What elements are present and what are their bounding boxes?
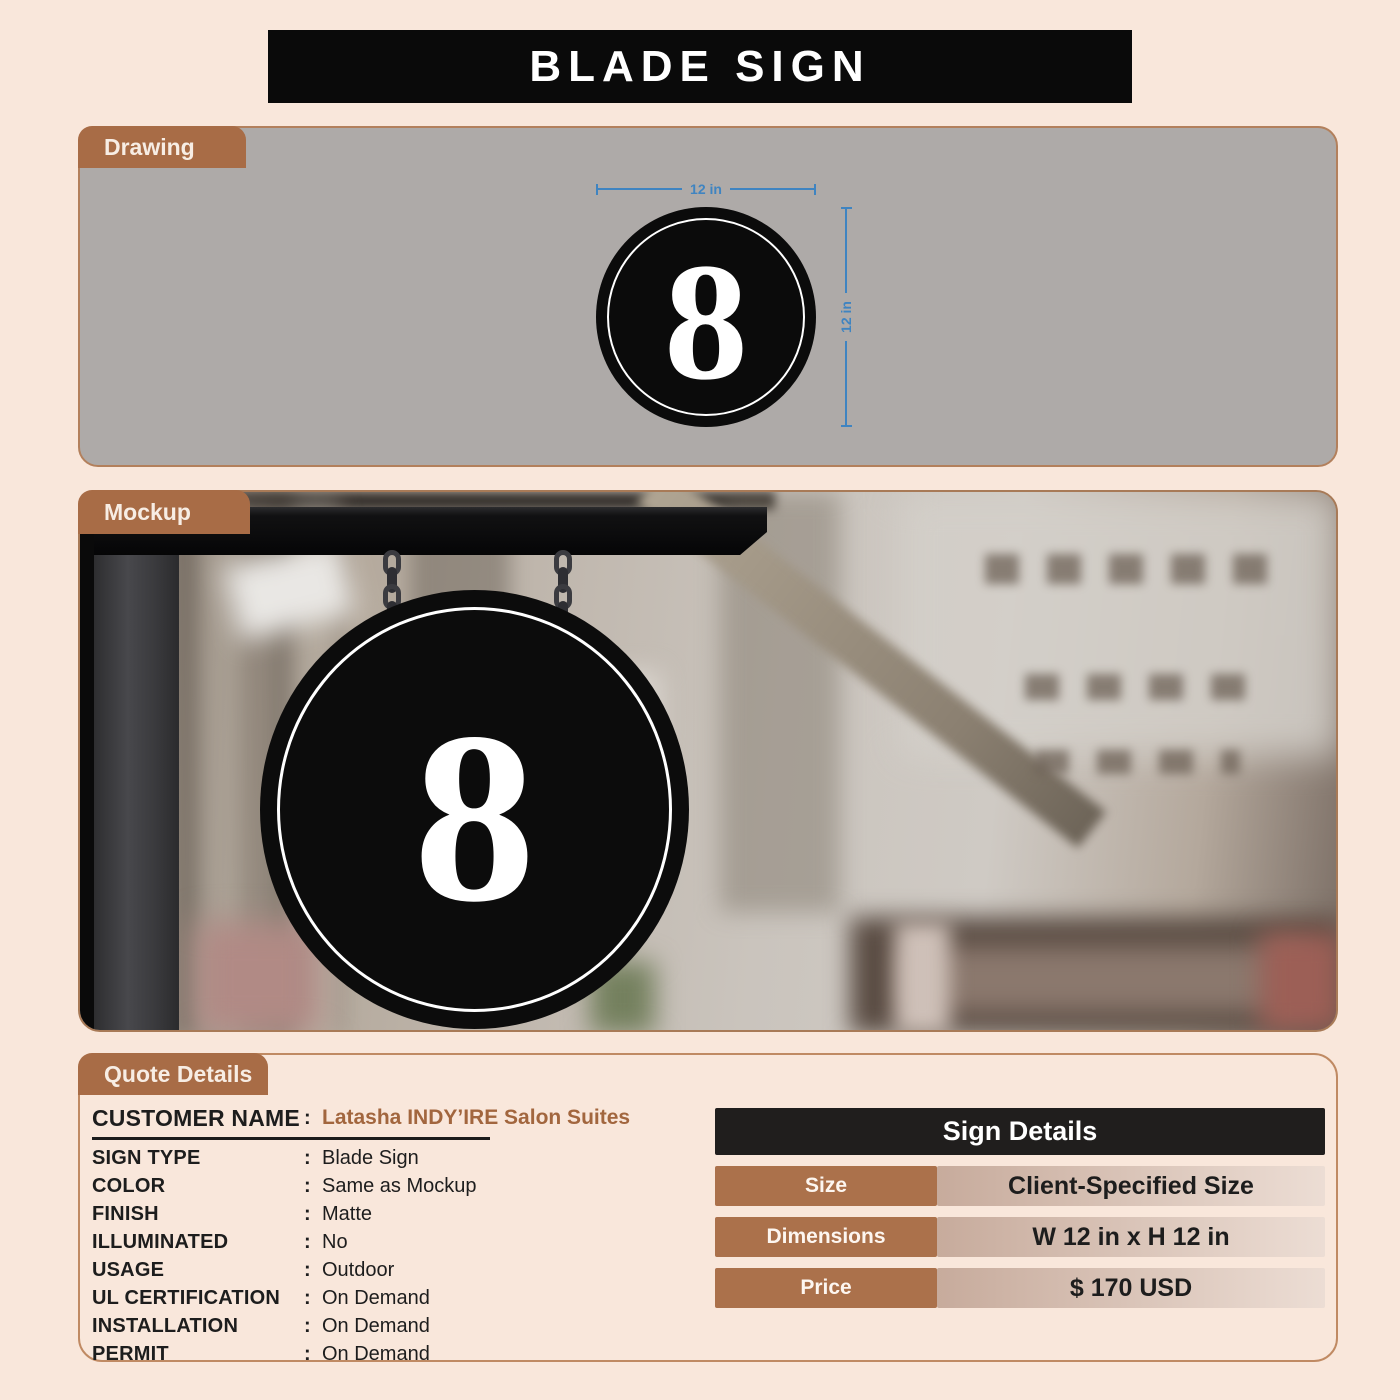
quote-fields: CUSTOMER NAME : Latasha INDY’IRE Salon S… bbox=[92, 1101, 692, 1368]
mockup-panel: 8 bbox=[78, 490, 1338, 1032]
field-colon: : bbox=[304, 1259, 322, 1282]
quote-details-tab-label: Quote Details bbox=[104, 1061, 252, 1088]
quote-field-ul-certification: UL CERTIFICATION : On Demand bbox=[92, 1284, 692, 1312]
dimension-tick bbox=[814, 184, 816, 195]
photo-signage-row bbox=[1035, 750, 1240, 774]
dimension-line bbox=[730, 188, 814, 190]
field-label: ILLUMINATED bbox=[92, 1231, 304, 1254]
quote-field-sign-type: SIGN TYPE : Blade Sign bbox=[92, 1144, 692, 1172]
width-dimension-label: 12 in bbox=[690, 181, 722, 197]
row-value: Client-Specified Size bbox=[1008, 1172, 1254, 1201]
field-label: UL CERTIFICATION bbox=[92, 1287, 304, 1310]
field-value: On Demand bbox=[322, 1315, 430, 1338]
field-colon: : bbox=[304, 1175, 322, 1198]
mockup-sign-number: 8 bbox=[414, 695, 536, 939]
row-value-cell: $ 170 USD bbox=[937, 1268, 1325, 1308]
field-label: CUSTOMER NAME bbox=[92, 1105, 304, 1132]
mockup-tab-label: Mockup bbox=[104, 499, 191, 526]
field-label: INSTALLATION bbox=[92, 1315, 304, 1338]
mockup-tab: Mockup bbox=[78, 490, 250, 534]
field-colon: : bbox=[304, 1343, 322, 1366]
quote-field-illuminated: ILLUMINATED : No bbox=[92, 1228, 692, 1256]
field-colon: : bbox=[304, 1315, 322, 1338]
drawing-sign-number: 8 bbox=[664, 238, 748, 406]
photo-signage-row bbox=[1025, 674, 1270, 700]
page-title: BLADE SIGN bbox=[529, 42, 870, 92]
field-value: Same as Mockup bbox=[322, 1175, 477, 1198]
customer-name-underline bbox=[92, 1137, 490, 1140]
field-value: Matte bbox=[322, 1203, 372, 1226]
row-label: Dimensions bbox=[766, 1225, 885, 1249]
field-value: No bbox=[322, 1231, 348, 1254]
field-colon: : bbox=[304, 1147, 322, 1170]
width-dimension-line: 12 in bbox=[596, 181, 816, 197]
field-value: Blade Sign bbox=[322, 1147, 419, 1170]
row-label: Size bbox=[805, 1174, 847, 1198]
field-value: Outdoor bbox=[322, 1259, 394, 1282]
quote-details-tab: Quote Details bbox=[78, 1053, 268, 1095]
mounting-post-edge bbox=[80, 492, 94, 1032]
drawing-tab-label: Drawing bbox=[104, 134, 195, 161]
row-value: $ 170 USD bbox=[1070, 1274, 1192, 1303]
photo-signage-row bbox=[985, 554, 1270, 584]
field-value: On Demand bbox=[322, 1343, 430, 1366]
dimension-line bbox=[845, 341, 847, 425]
field-colon: : bbox=[304, 1287, 322, 1310]
field-label: USAGE bbox=[92, 1259, 304, 1282]
dimension-tick bbox=[841, 207, 852, 209]
field-colon: : bbox=[304, 1231, 322, 1254]
height-dimension-line: 12 in bbox=[838, 207, 854, 427]
row-label-cell: Price bbox=[715, 1268, 937, 1308]
quote-field-color: COLOR : Same as Mockup bbox=[92, 1172, 692, 1200]
photo-storefront-light bbox=[900, 947, 1310, 1012]
title-banner: BLADE SIGN bbox=[268, 30, 1132, 103]
row-value: W 12 in x H 12 in bbox=[1032, 1223, 1229, 1252]
drawing-tab: Drawing bbox=[78, 126, 246, 168]
sign-details-table: Sign Details Size Client-Specified Size … bbox=[715, 1108, 1325, 1308]
row-label: Price bbox=[800, 1276, 851, 1300]
sign-details-row-price: Price $ 170 USD bbox=[715, 1268, 1325, 1308]
quote-field-customer-name: CUSTOMER NAME : Latasha INDY’IRE Salon S… bbox=[92, 1101, 692, 1135]
quote-field-permit: PERMIT : On Demand bbox=[92, 1340, 692, 1368]
dimension-line bbox=[845, 209, 847, 293]
row-label-cell: Dimensions bbox=[715, 1217, 937, 1257]
quote-field-finish: FINISH : Matte bbox=[92, 1200, 692, 1228]
drawing-sign-circle: 8 bbox=[596, 207, 816, 427]
sign-details-row-size: Size Client-Specified Size bbox=[715, 1166, 1325, 1206]
row-label-cell: Size bbox=[715, 1166, 937, 1206]
field-label: FINISH bbox=[92, 1203, 304, 1226]
sign-details-row-dimensions: Dimensions W 12 in x H 12 in bbox=[715, 1217, 1325, 1257]
photo-pillar bbox=[895, 922, 950, 1032]
row-value-cell: W 12 in x H 12 in bbox=[937, 1217, 1325, 1257]
field-value: Latasha INDY’IRE Salon Suites bbox=[322, 1106, 630, 1130]
photo-red-blob bbox=[1260, 932, 1338, 1032]
quote-field-installation: INSTALLATION : On Demand bbox=[92, 1312, 692, 1340]
blade-sign-quote-sheet: BLADE SIGN Drawing 8 12 in 12 in bbox=[0, 0, 1400, 1400]
mockup-sign-circle: 8 bbox=[260, 590, 689, 1029]
field-colon: : bbox=[304, 1203, 322, 1226]
field-value: On Demand bbox=[322, 1287, 430, 1310]
quote-field-usage: USAGE : Outdoor bbox=[92, 1256, 692, 1284]
sign-details-header: Sign Details bbox=[715, 1108, 1325, 1155]
row-value-cell: Client-Specified Size bbox=[937, 1166, 1325, 1206]
field-label: PERMIT bbox=[92, 1343, 304, 1366]
height-dimension-label: 12 in bbox=[838, 301, 854, 333]
field-colon: : bbox=[304, 1107, 322, 1130]
dimension-line bbox=[598, 188, 682, 190]
field-label: SIGN TYPE bbox=[92, 1147, 304, 1170]
field-label: COLOR bbox=[92, 1175, 304, 1198]
sign-details-header-label: Sign Details bbox=[943, 1116, 1098, 1147]
mounting-post bbox=[94, 492, 179, 1032]
dimension-tick bbox=[841, 425, 852, 427]
